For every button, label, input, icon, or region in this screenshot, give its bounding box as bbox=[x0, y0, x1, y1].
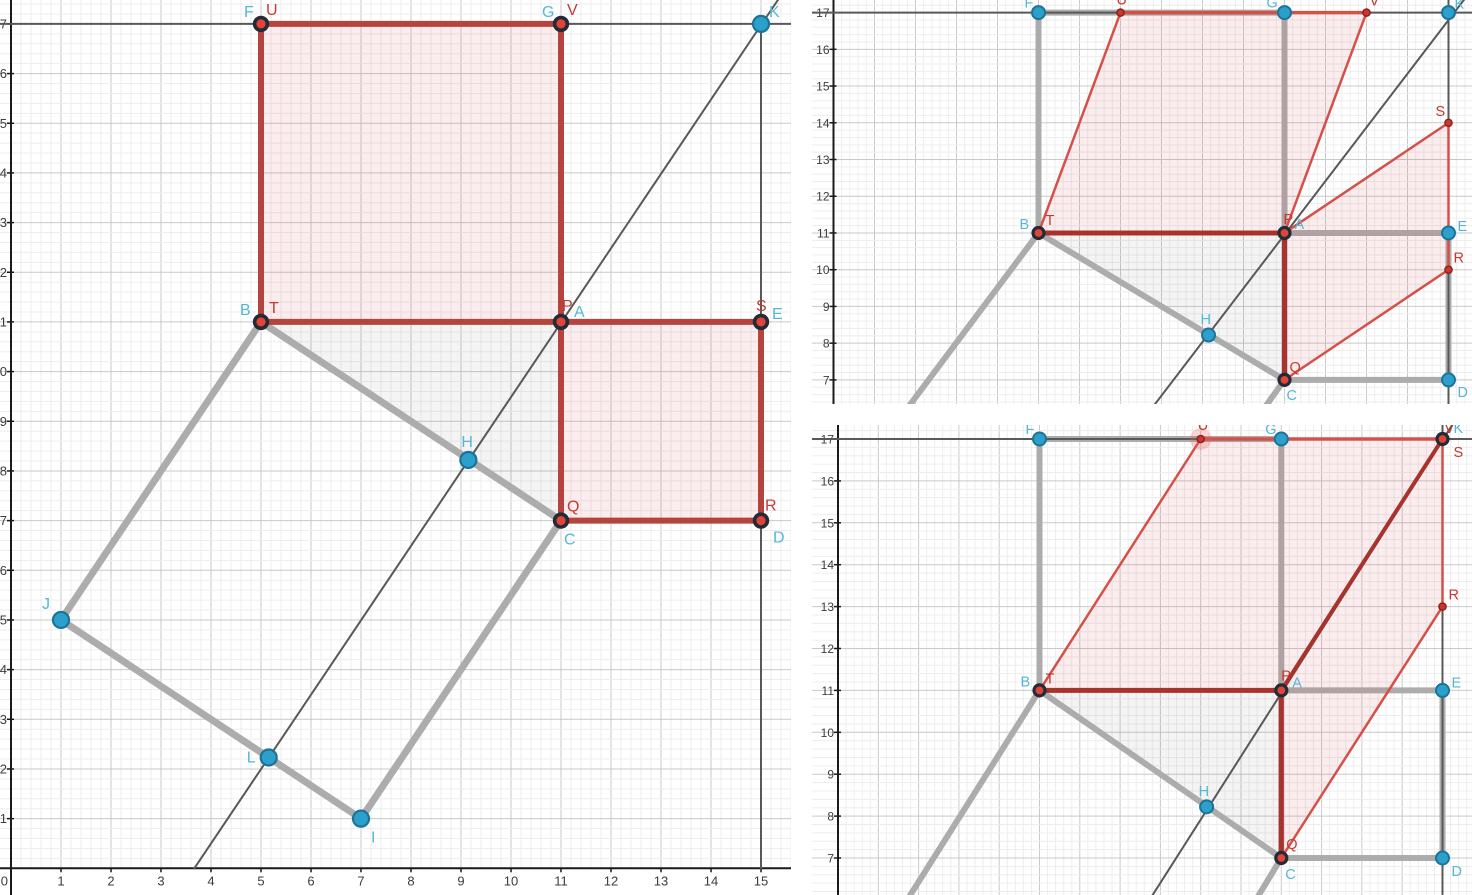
y-tick-label: 16 bbox=[0, 66, 7, 81]
point-C-Q[interactable] bbox=[1279, 374, 1290, 385]
point-A-P[interactable] bbox=[1279, 227, 1290, 238]
y-tick-label: 9 bbox=[823, 300, 830, 314]
point-K[interactable] bbox=[753, 16, 769, 32]
square-TPVU[interactable] bbox=[261, 24, 561, 322]
point-C-Q[interactable] bbox=[555, 514, 568, 527]
point-G[interactable] bbox=[1275, 433, 1288, 446]
label-D: D bbox=[1458, 385, 1468, 401]
y-tick-label: 7 bbox=[823, 373, 830, 387]
label-S: S bbox=[1454, 445, 1464, 461]
y-tick-label: 14 bbox=[816, 116, 830, 130]
y-tick-label: 8 bbox=[0, 463, 7, 478]
label-S: S bbox=[756, 298, 767, 315]
label-C: C bbox=[1287, 388, 1297, 404]
y-tick-label: 16 bbox=[821, 474, 835, 488]
x-tick-label: 14 bbox=[704, 873, 718, 888]
point-U[interactable] bbox=[1197, 435, 1204, 442]
point-E-S[interactable] bbox=[755, 316, 768, 329]
y-tick-label: 4 bbox=[0, 662, 7, 677]
label-T: T bbox=[1046, 213, 1055, 229]
y-tick-label: 11 bbox=[822, 684, 835, 698]
label-U: U bbox=[1198, 425, 1208, 434]
point-L[interactable] bbox=[261, 749, 277, 765]
point-E[interactable] bbox=[1436, 684, 1449, 697]
point-R[interactable] bbox=[1439, 603, 1446, 610]
y-tick-label: 8 bbox=[827, 810, 834, 824]
label-U: U bbox=[266, 2, 278, 19]
y-tick-label: 3 bbox=[0, 712, 7, 727]
point-F[interactable] bbox=[1032, 6, 1045, 19]
y-tick-label: 12 bbox=[0, 265, 7, 280]
label-Q: Q bbox=[567, 499, 579, 516]
point-B-T[interactable] bbox=[255, 316, 268, 329]
x-tick-label: 2 bbox=[107, 873, 114, 888]
y-tick-label: 14 bbox=[0, 165, 7, 180]
label-Q: Q bbox=[1286, 837, 1297, 853]
label-H: H bbox=[1201, 312, 1211, 328]
y-tick-label: 9 bbox=[827, 768, 834, 782]
geometry-app-window: 1234567891011121314150123456789101112131… bbox=[0, 0, 1472, 895]
y-tick-label: 15 bbox=[816, 80, 830, 94]
label-T: T bbox=[1046, 671, 1055, 687]
label-R: R bbox=[1449, 588, 1459, 604]
point-E[interactable] bbox=[1442, 226, 1455, 239]
graphics-view-shear-mid[interactable]: 7891011121314151617FUGVKBTPASERQCDH bbox=[812, 0, 1472, 404]
label-B: B bbox=[240, 302, 251, 319]
point-H[interactable] bbox=[1200, 800, 1213, 813]
label-F: F bbox=[1026, 425, 1035, 438]
point-D-R[interactable] bbox=[755, 514, 768, 527]
label-C: C bbox=[1285, 867, 1295, 883]
label-Q: Q bbox=[1290, 360, 1301, 376]
label-S: S bbox=[1436, 104, 1446, 120]
label-G: G bbox=[1267, 0, 1278, 12]
y-tick-label: 15 bbox=[0, 116, 7, 131]
graphics-view-main[interactable]: 1234567891011121314150123456789101112131… bbox=[0, 0, 791, 895]
label-E: E bbox=[772, 306, 783, 323]
label-J: J bbox=[42, 596, 50, 613]
point-S[interactable] bbox=[1445, 119, 1452, 126]
point-J[interactable] bbox=[53, 612, 69, 628]
label-V: V bbox=[1370, 0, 1380, 10]
x-tick-label: 12 bbox=[604, 873, 618, 888]
point-H[interactable] bbox=[1202, 329, 1215, 342]
y-tick-label: 12 bbox=[821, 642, 835, 656]
y-tick-label: 2 bbox=[0, 761, 7, 776]
y-tick-label: 7 bbox=[0, 513, 7, 528]
point-G[interactable] bbox=[1278, 6, 1291, 19]
label-A: A bbox=[1292, 675, 1302, 691]
y-tick-label: 16 bbox=[816, 43, 830, 57]
square-QRSP[interactable] bbox=[561, 322, 761, 521]
graphics-view-shear-full[interactable]: 7891011121314151617FUGVKSERBTPAQCDH bbox=[812, 425, 1472, 895]
x-tick-label: 9 bbox=[457, 873, 464, 888]
label-H: H bbox=[1199, 784, 1209, 800]
y-tick-label: 1 bbox=[0, 811, 7, 826]
x-tick-label: 3 bbox=[157, 873, 164, 888]
label-K: K bbox=[769, 4, 780, 21]
x-tick-label: 7 bbox=[357, 873, 364, 888]
x-tick-label: 1 bbox=[57, 873, 64, 888]
label-R: R bbox=[1454, 251, 1464, 267]
x-tick-label: 10 bbox=[504, 873, 518, 888]
label-H: H bbox=[461, 434, 473, 451]
point-A-P[interactable] bbox=[555, 316, 568, 329]
point-D[interactable] bbox=[1442, 373, 1455, 386]
y-tick-label: 13 bbox=[816, 153, 830, 167]
label-U: U bbox=[1117, 0, 1127, 9]
y-tick-label: 13 bbox=[821, 600, 835, 614]
label-V: V bbox=[567, 2, 578, 19]
label-L: L bbox=[247, 749, 256, 766]
point-A-P[interactable] bbox=[1276, 685, 1287, 696]
point-H[interactable] bbox=[460, 452, 476, 468]
label-F: F bbox=[1025, 0, 1034, 12]
y-tick-label: 11 bbox=[817, 226, 830, 240]
y-tick-label: 10 bbox=[816, 263, 830, 277]
point-B-T[interactable] bbox=[1034, 685, 1045, 696]
label-D: D bbox=[773, 530, 785, 547]
label-B: B bbox=[1021, 674, 1031, 690]
label-I: I bbox=[371, 830, 375, 847]
label-A: A bbox=[574, 304, 585, 321]
label-P: P bbox=[1281, 668, 1291, 684]
point-B-T[interactable] bbox=[1033, 227, 1044, 238]
label-E: E bbox=[1452, 675, 1462, 691]
x-tick-label: 8 bbox=[407, 873, 414, 888]
y-tick-label: 6 bbox=[0, 563, 7, 578]
point-C-Q[interactable] bbox=[1276, 853, 1287, 864]
origin-label: 0 bbox=[1, 873, 8, 888]
label-C: C bbox=[564, 532, 576, 549]
label-T: T bbox=[269, 300, 279, 317]
label-E: E bbox=[1458, 219, 1468, 235]
y-tick-label: 14 bbox=[821, 558, 835, 572]
label-R: R bbox=[765, 498, 777, 515]
label-F: F bbox=[244, 4, 254, 21]
label-G: G bbox=[542, 4, 554, 21]
point-U[interactable] bbox=[1117, 9, 1124, 16]
point-I[interactable] bbox=[353, 811, 369, 827]
label-K: K bbox=[1454, 425, 1464, 437]
y-tick-label: 15 bbox=[821, 516, 835, 530]
y-tick-label: 13 bbox=[0, 215, 7, 230]
label-P: P bbox=[1284, 212, 1294, 228]
y-tick-label: 8 bbox=[823, 337, 830, 351]
y-tick-label: 10 bbox=[0, 364, 7, 379]
label-B: B bbox=[1020, 217, 1030, 233]
x-tick-label: 15 bbox=[754, 873, 768, 888]
x-tick-label: 5 bbox=[257, 873, 264, 888]
point-G-V[interactable] bbox=[555, 18, 568, 31]
point-D[interactable] bbox=[1436, 852, 1449, 865]
label-A: A bbox=[1295, 217, 1305, 233]
point-K[interactable] bbox=[1442, 6, 1455, 19]
y-tick-label: 5 bbox=[0, 612, 7, 627]
point-F-U[interactable] bbox=[255, 18, 268, 31]
y-tick-label: 9 bbox=[0, 414, 7, 429]
label-P: P bbox=[562, 298, 573, 315]
point-V[interactable] bbox=[1363, 9, 1370, 16]
label-D: D bbox=[1452, 864, 1462, 880]
point-R[interactable] bbox=[1445, 266, 1452, 273]
segment-BJ[interactable] bbox=[909, 233, 1038, 404]
point-F[interactable] bbox=[1033, 433, 1046, 446]
x-tick-label: 6 bbox=[307, 873, 314, 888]
label-K: K bbox=[1455, 0, 1465, 13]
label-G: G bbox=[1265, 425, 1276, 438]
y-tick-label: 7 bbox=[827, 852, 834, 866]
y-tick-label: 11 bbox=[0, 314, 7, 329]
x-tick-label: 11 bbox=[554, 873, 568, 888]
x-tick-label: 4 bbox=[207, 873, 214, 888]
y-tick-label: 10 bbox=[821, 726, 835, 740]
y-tick-label: 12 bbox=[816, 190, 830, 204]
x-tick-label: 13 bbox=[654, 873, 668, 888]
segment-BJ[interactable] bbox=[909, 690, 1040, 895]
